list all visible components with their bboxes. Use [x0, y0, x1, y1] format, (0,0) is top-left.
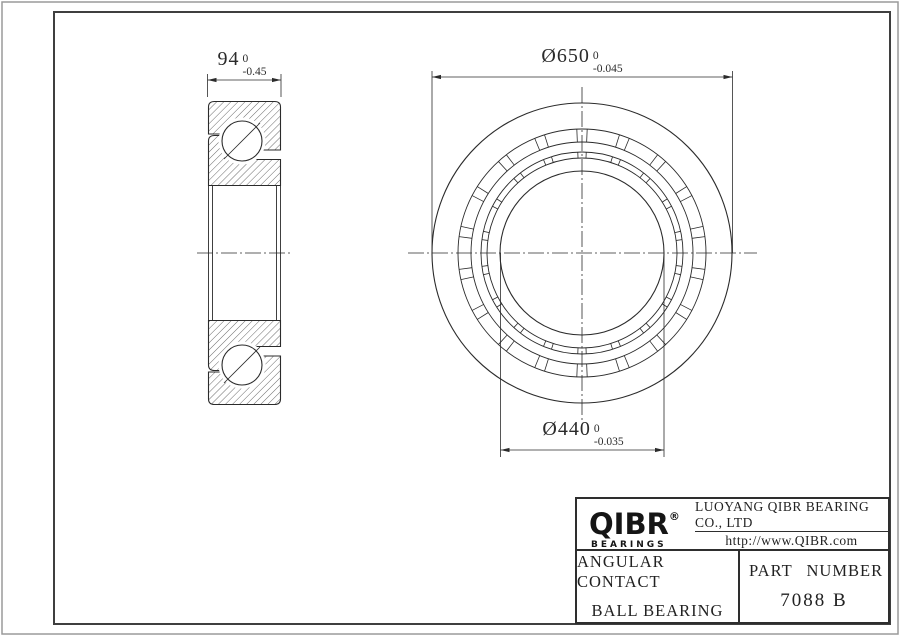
dimension-width-text: 940-0.45 — [192, 48, 292, 79]
tolerance-upper: 0 — [593, 50, 623, 63]
title-block: QIBR® BEARINGS LUOYANG QIBR BEARING CO.,… — [575, 497, 890, 624]
registered-trademark-symbol: ® — [669, 510, 680, 523]
product-description: ANGULAR CONTACT BALL BEARING — [577, 551, 740, 622]
tolerance-upper: 0 — [594, 423, 624, 436]
company-website: http://www.QIBR.com — [695, 532, 888, 549]
part-number-value: 7088 B — [740, 590, 888, 612]
part-number-cell: PART NUMBER 7088 B — [740, 551, 888, 622]
logo-text: QIBR — [589, 507, 669, 541]
title-block-header-row: QIBR® BEARINGS LUOYANG QIBR BEARING CO.,… — [577, 499, 888, 551]
dimension-bore-text: Ø4400-0.035 — [498, 418, 668, 449]
tolerance-lower: -0.45 — [243, 66, 267, 79]
drawing-sheet: 940-0.45 Ø6500-0.045 Ø4400-0.035 QIBR® B… — [0, 0, 900, 636]
dimension-value: Ø440 — [542, 418, 590, 440]
company-info: LUOYANG QIBR BEARING CO., LTD http://www… — [695, 499, 888, 549]
arrowhead-right — [724, 75, 733, 79]
tolerance-upper: 0 — [243, 53, 267, 66]
logo: QIBR® BEARINGS — [577, 499, 695, 549]
tolerance-lower: -0.035 — [594, 436, 624, 449]
logo-subtitle: BEARINGS — [591, 540, 695, 550]
title-block-detail-row: ANGULAR CONTACT BALL BEARING PART NUMBER… — [577, 551, 888, 622]
dimension-value: 94 — [218, 48, 240, 70]
company-name: LUOYANG QIBR BEARING CO., LTD — [695, 499, 888, 532]
dimension-outer-text: Ø6500-0.045 — [497, 45, 667, 76]
part-number-label: PART NUMBER — [740, 561, 888, 581]
section-view — [197, 102, 292, 405]
dimension-value: Ø650 — [541, 45, 589, 67]
product-description-line2: BALL BEARING — [592, 601, 724, 621]
product-description-line1: ANGULAR CONTACT — [577, 552, 738, 592]
logo-wordmark: QIBR® — [589, 502, 695, 539]
tolerance-lower: -0.045 — [593, 63, 623, 76]
arrowhead-left — [432, 75, 441, 79]
